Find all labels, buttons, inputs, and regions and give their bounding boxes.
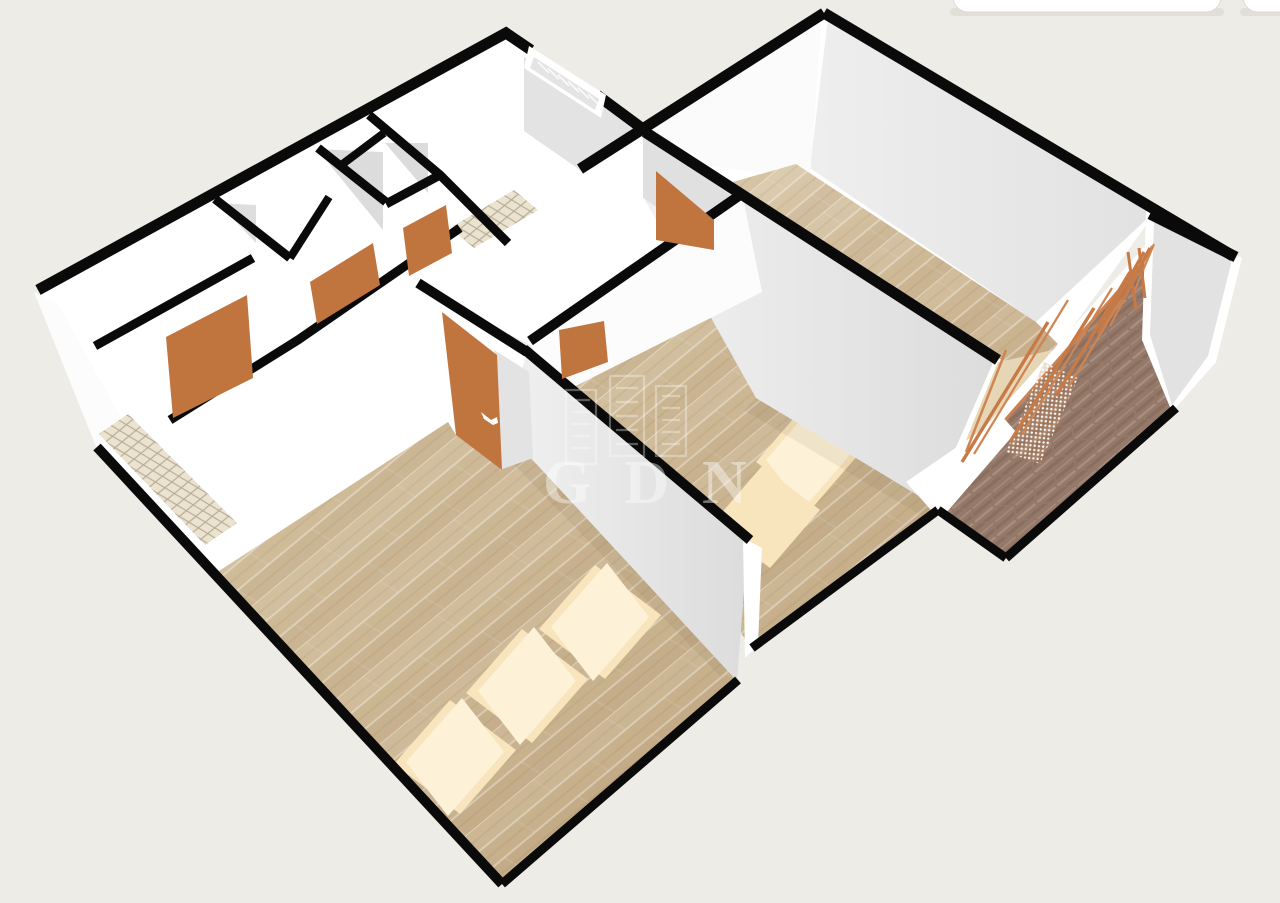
svg-text:GDN: GDN: [543, 449, 780, 517]
